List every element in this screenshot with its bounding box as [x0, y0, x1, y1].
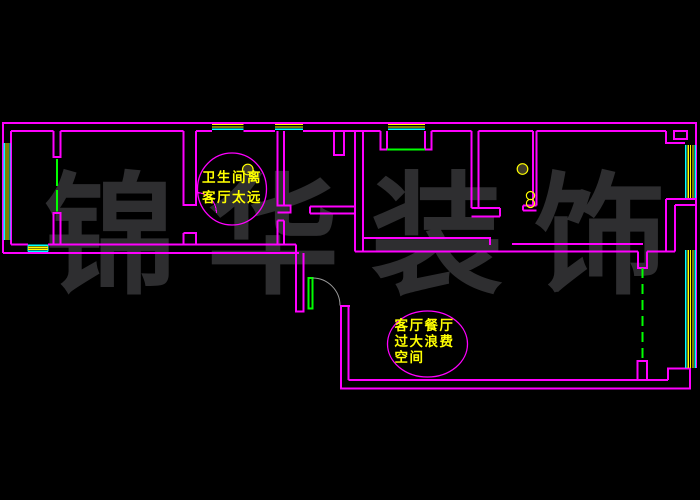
right-bay-column — [674, 131, 687, 139]
ceiling-lamp-icon — [517, 164, 528, 175]
annotation-living-room: 客厅餐厅 过大浪费 空间 — [388, 311, 468, 377]
watermark-char-1: 锦 — [44, 159, 176, 314]
right-bay-middle-wall — [666, 199, 696, 252]
floor-plan-svg: 锦 华 装 饰 — [0, 0, 700, 500]
watermark-char-4: 饰 — [534, 159, 666, 314]
annotation-text-line: 卫生间离 — [202, 169, 262, 186]
bathroom-left-wall — [184, 131, 197, 245]
kitchen-window-bay-walls — [381, 131, 432, 150]
cad-canvas: 锦 华 装 饰 — [0, 0, 700, 500]
right-window-glass — [688, 145, 693, 368]
top-window-glass — [212, 125, 425, 127]
right-bay-top-wall — [666, 131, 685, 143]
annotation-text-line: 过大浪费 — [395, 333, 455, 350]
watermark-char-3: 装 — [371, 159, 503, 314]
left-window-glass — [6, 143, 8, 240]
annotation-text-line: 客厅餐厅 — [394, 317, 455, 334]
living-room-bottom-inner-wall — [349, 369, 691, 389]
annotation-text-line: 空间 — [395, 349, 425, 366]
left-window-frame — [4, 143, 10, 240]
annotation-text-line: 客厅太远 — [201, 189, 262, 206]
balcony-pier-lower — [638, 361, 648, 380]
